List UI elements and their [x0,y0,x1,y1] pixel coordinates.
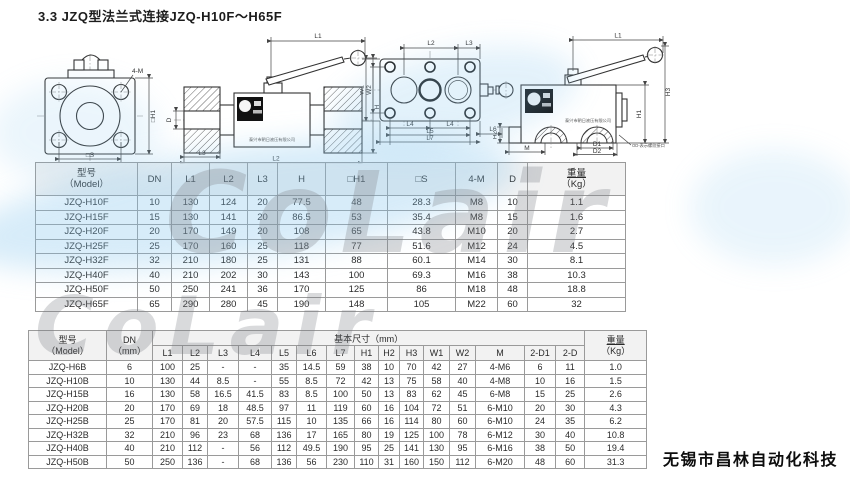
table-cell: 100 [153,361,183,375]
table-cell: 77 [326,239,388,254]
brand-plate [525,89,553,113]
table-cell: 44 [183,374,208,388]
col-header-l6: L6 [297,346,327,361]
table-cell: 31 [379,455,400,469]
table-cell: 104 [400,401,424,415]
table-cell: JZQ-H10F [36,196,138,211]
table-cell: 32 [107,428,153,442]
table-cell: 141 [400,442,424,456]
table-cell: 190 [278,297,326,312]
table-cell: 75 [400,374,424,388]
table-cell: 130 [172,210,210,225]
table-cell: 58 [424,374,450,388]
table-cell: 4.5 [528,239,626,254]
table-cell: 51 [450,401,476,415]
col-header-model: 型号 （Model） [36,163,138,196]
table-cell: 25 [248,239,278,254]
col-header-l4: L4 [239,346,272,361]
table2-header-row1: 型号 （Model） DN （mm） 基本尺寸（mm） 重量 （Kg） [29,331,647,346]
table-cell: 30 [525,428,556,442]
table-cell: 230 [327,455,355,469]
table-cell: 20 [107,401,153,415]
table-row: JZQ-H15F151301412086.55335.4M8151.6 [36,210,626,225]
dim-label-w2: W2 [366,85,373,95]
table-cell: JZQ-H15F [36,210,138,225]
table-cell: 8.5 [297,374,327,388]
table-cell: JZQ-H65F [36,297,138,312]
table-cell: 19 [379,428,400,442]
table-cell: 17 [297,428,327,442]
table-cell: 97 [272,401,297,415]
table-cell: 50 [355,388,379,402]
catalog-page: 3.3 JZQ型法兰式连接JZQ-H10F～H65F CoLair CoLair [0,0,850,489]
table1-body: JZQ-H10F101301242077.54828.3M8101.1JZQ-H… [36,196,626,312]
table-cell: 60 [450,415,476,429]
table-cell: 96 [183,428,208,442]
table-row: JZQ-H50B50250136-68136562301103116015011… [29,455,647,469]
table-cell: 31.3 [585,455,647,469]
table-cell: 180 [210,254,248,269]
table-cell: 210 [172,268,210,283]
col-header-weight: 重量 （Kg） [585,331,647,361]
table-cell: 190 [327,442,355,456]
table-cell: 105 [388,297,456,312]
table-cell: 112 [450,455,476,469]
dim-label-m: M [524,145,529,152]
table-cell: 80 [355,428,379,442]
col-header-h3: H3 [400,346,424,361]
table-cell: 51.6 [388,239,456,254]
table-cell: 280 [210,297,248,312]
dim-label-l4b: L4 [446,121,454,128]
table-cell: 24 [498,239,528,254]
table-cell: 53 [326,210,388,225]
table1-header-row: 型号 （Model） DN L1 L2 L3 H □H1 □S 4-M D 重量… [36,163,626,196]
table-cell: 1.5 [585,374,647,388]
col-header-l7: L7 [327,346,355,361]
table-cell: 141 [210,210,248,225]
table-cell: 131 [278,254,326,269]
table-cell: 136 [183,455,208,469]
table-cell: M12 [456,239,498,254]
table-cell: 95 [355,442,379,456]
table-cell: 143 [278,268,326,283]
table-cell: - [208,361,239,375]
table-row: JZQ-H10F101301242077.54828.3M8101.1 [36,196,626,211]
table-row: JZQ-H20B20170691848.59711119601610472516… [29,401,647,415]
table-cell: 125 [326,283,388,298]
table-cell: 210 [153,442,183,456]
table-cell: 6-M10 [476,401,525,415]
table-cell: 13 [379,388,400,402]
table-cell: 4.3 [585,401,647,415]
table-row: JZQ-H15B161305816.541.5838.5100501383624… [29,388,647,402]
dim-label-h3: H3 [665,87,672,96]
table-cell: 10.3 [528,268,626,283]
table-cell: 36 [248,283,278,298]
table-cell: 25 [556,388,585,402]
table-cell: JZQ-H50F [36,283,138,298]
table-cell: 50 [556,442,585,456]
dim-label-l3: L3 [198,150,206,157]
table-row: JZQ-H32B32210962368136171658019125100786… [29,428,647,442]
table-cell: 11 [297,401,327,415]
table-cell: 202 [210,268,248,283]
table-cell: 100 [326,268,388,283]
table-cell: 30 [248,268,278,283]
table-cell: - [208,455,239,469]
lever-handle [567,46,664,83]
table-cell: 38 [525,442,556,456]
dim-label-d: D [166,117,173,122]
col-header-l1: L1 [153,346,183,361]
table-cell: 42 [424,361,450,375]
table-row: JZQ-H25B25170812057.51151013566161148060… [29,415,647,429]
table-cell: 48 [525,455,556,469]
table-cell: 20 [138,225,172,240]
table-cell: 59 [327,361,355,375]
dim-label-d2: D2 [593,148,602,155]
table-cell: 25 [183,361,208,375]
table-cell: 148 [326,297,388,312]
table-cell: 72 [424,401,450,415]
table-cell: 112 [183,442,208,456]
table-cell: 8.5 [208,374,239,388]
table-cell: 20 [248,210,278,225]
table-cell: 24 [525,415,556,429]
table-cell: 55 [272,374,297,388]
table-cell: 78 [450,428,476,442]
table-cell: 1.6 [528,210,626,225]
col-header-weight: 重量 （Kg） [528,163,626,196]
table-cell: M8 [456,196,498,211]
table-cell: JZQ-H32F [36,254,138,269]
col-header-model: 型号 （Model） [29,331,107,361]
table-cell: 19.4 [585,442,647,456]
table-cell: 69.3 [388,268,456,283]
table-cell: 210 [172,254,210,269]
table-cell: 6-M8 [476,388,525,402]
table-cell: 48.5 [239,401,272,415]
table-cell: 80 [424,415,450,429]
brand-plate [237,97,263,121]
table-cell: 88 [326,254,388,269]
blue-tint-band [690,150,850,265]
dim-label-l7: L7 [426,135,434,142]
dim-label-h1: H1 [636,109,643,118]
table-row: JZQ-H65F6529028045190148105M226032 [36,297,626,312]
thread-note: OD-表示螺纹接口 [632,142,665,149]
col-header-2d1: 2-D1 [525,346,556,361]
table-cell: 210 [153,428,183,442]
table-cell: 165 [327,428,355,442]
table-cell: M14 [456,254,498,269]
table-cell: 20 [525,401,556,415]
col-header-dn: DN [138,163,172,196]
company-name: 无锡市昌林自动化科技 [663,446,838,470]
table-cell: 1.1 [528,196,626,211]
table-cell: 43.8 [388,225,456,240]
table-cell: 32 [528,297,626,312]
table-cell: 30 [556,401,585,415]
table-cell: 18 [208,401,239,415]
table-cell: - [239,361,272,375]
table-cell: 23 [208,428,239,442]
table-cell: 170 [153,401,183,415]
col-header-m: M [476,346,525,361]
table-cell: 20 [208,415,239,429]
table-cell: 95 [450,442,476,456]
col-header-d: D [498,163,528,196]
table-cell: M18 [456,283,498,298]
col-header-h2: H2 [379,346,400,361]
table-cell: 8.5 [297,388,327,402]
table-cell: 170 [172,225,210,240]
dim-label-l3: L3 [465,40,473,47]
dim-label-h1: □H1 [150,110,157,123]
table-cell: 112 [272,442,297,456]
table-cell: 115 [272,415,297,429]
table-cell: 66 [355,415,379,429]
col-header-dn: DN （mm） [107,331,153,361]
table-cell: 170 [172,239,210,254]
table-cell: 42 [355,374,379,388]
col-header-2d: 2-D [556,346,585,361]
dim-label-l4a: L4 [406,121,414,128]
table-cell: 49.5 [297,442,327,456]
table-cell: 250 [153,455,183,469]
table-cell: 241 [210,283,248,298]
table-cell: 10 [138,196,172,211]
block-valve-side-view-drawing: 泰兴市朝日液压有限公司 L1 H3 H1 H2 M D1 [493,27,673,159]
col-header-l1: L1 [172,163,210,196]
table-cell: 50 [107,455,153,469]
table-cell: 100 [327,388,355,402]
table-cell: M16 [456,268,498,283]
table-cell: 56 [239,442,272,456]
table-cell: 16 [107,388,153,402]
table-cell: 32 [138,254,172,269]
col-header-4m: 4-M [456,163,498,196]
table-cell: 15 [525,388,556,402]
table-cell: 4-M6 [476,361,525,375]
table-cell: 60 [556,455,585,469]
table-cell: 35.4 [388,210,456,225]
table-cell: 48 [326,196,388,211]
table-cell: 16 [556,374,585,388]
table-cell: 160 [400,455,424,469]
table-cell: 40 [138,268,172,283]
table-cell: 60 [355,401,379,415]
table-cell: 10.8 [585,428,647,442]
col-header-l3: L3 [248,163,278,196]
table-cell: 2.6 [585,388,647,402]
table-cell: 60 [498,297,528,312]
table-cell: 16 [379,415,400,429]
table-cell: 150 [424,455,450,469]
table-cell: 83 [272,388,297,402]
table-cell: 124 [210,196,248,211]
table-cell: 16.5 [208,388,239,402]
table-cell: JZQ-H15B [29,388,107,402]
table-cell: 118 [278,239,326,254]
table-cell: 160 [210,239,248,254]
table-cell: 20 [498,225,528,240]
col-header-h1: H1 [355,346,379,361]
table-cell: 69 [183,401,208,415]
table-cell: 25 [248,254,278,269]
table-row: JZQ-H50F502502413617012586M184818.8 [36,283,626,298]
dim-label-d1: D1 [593,141,602,148]
col-header-l3: L3 [208,346,239,361]
col-header-w2: W2 [450,346,476,361]
table-cell: 6-M20 [476,455,525,469]
table-cell: 68 [239,455,272,469]
table-row: JZQ-H10B10130448.5-558.57242137558404-M8… [29,374,647,388]
table-cell: 38 [355,361,379,375]
table-cell: 25 [107,415,153,429]
table-cell: 130 [424,442,450,456]
table-cell: 6.2 [585,415,647,429]
table-cell: - [208,442,239,456]
table-cell: 72 [327,374,355,388]
table-cell: 27 [450,361,476,375]
table-cell: M22 [456,297,498,312]
table-cell: 14.5 [297,361,327,375]
table-cell: 65 [326,225,388,240]
dim-label-s: □S [86,152,95,159]
table-cell: 13 [379,374,400,388]
table-cell: 110 [355,455,379,469]
table-cell: 130 [153,388,183,402]
valve-side-view-drawing: 泰兴市朝日液压有限公司 L1 H D L3 L2 [166,27,381,164]
table-row: JZQ-H32F32210180251318860.1M14308.1 [36,254,626,269]
table-cell: JZQ-H25B [29,415,107,429]
col-header-h: H [278,163,326,196]
table-cell: 68 [239,428,272,442]
table-cell: 18.8 [528,283,626,298]
table-cell: 25 [379,442,400,456]
dim-label-w1: W1 [360,85,366,95]
table-cell: 6-M12 [476,428,525,442]
table-cell: 2.7 [528,225,626,240]
table-cell: 8.1 [528,254,626,269]
flange-body [45,78,135,154]
valve-handle [68,55,114,78]
table-cell: JZQ-H6B [29,361,107,375]
table-cell: 60.1 [388,254,456,269]
table-cell: 38 [498,268,528,283]
table-cell: 50 [138,283,172,298]
table-cell: 170 [278,283,326,298]
table-cell: 45 [248,297,278,312]
table-cell: 15 [498,210,528,225]
table-cell: 119 [327,401,355,415]
table-cell: JZQ-H32B [29,428,107,442]
table-cell: 135 [327,415,355,429]
table-cell: 40 [450,374,476,388]
table-cell: 45 [450,388,476,402]
table-cell: 6-M10 [476,415,525,429]
table-cell: 130 [172,196,210,211]
table2-body: JZQ-H6B610025--3514.55938107042274-M6611… [29,361,647,469]
table-cell: 83 [400,388,424,402]
table-cell: 65 [138,297,172,312]
block-dimension-table: 型号 （Model） DN （mm） 基本尺寸（mm） 重量 （Kg） L1 L… [28,330,647,469]
table-cell: 16 [379,401,400,415]
table-cell: 28.3 [388,196,456,211]
table-cell: JZQ-H40F [36,268,138,283]
table-cell: 30 [498,254,528,269]
table-cell: 10 [525,374,556,388]
lever-handle [266,49,367,85]
table-cell: 86.5 [278,210,326,225]
table-cell: 6 [525,361,556,375]
col-header-s: □S [388,163,456,196]
table-cell: JZQ-H10B [29,374,107,388]
table-cell: 58 [183,388,208,402]
dim-label-h2: H2 [493,130,499,139]
table-cell: 70 [400,361,424,375]
table-cell: 6 [107,361,153,375]
col-header-l2: L2 [210,163,248,196]
table-cell: 86 [388,283,456,298]
table-cell: 15 [138,210,172,225]
table-cell: 136 [272,455,297,469]
table-cell: JZQ-H40B [29,442,107,456]
table-cell: 10 [379,361,400,375]
flange-dimension-table: 型号 （Model） DN L1 L2 L3 H □H1 □S 4-M D 重量… [35,162,626,312]
table-cell: 35 [272,361,297,375]
table-cell: 40 [107,442,153,456]
col-header-l2: L2 [183,346,208,361]
table-cell: 149 [210,225,248,240]
col-header-h1: □H1 [326,163,388,196]
dim-label-l5: L5 [426,128,434,135]
table-cell: JZQ-H50B [29,455,107,469]
table-cell: JZQ-H25F [36,239,138,254]
table-row: JZQ-H6B610025--3514.55938107042274-M6611… [29,361,647,375]
table-cell: 100 [424,428,450,442]
table-cell: 130 [153,374,183,388]
table-cell: 40 [556,428,585,442]
table-cell: 20 [248,225,278,240]
table-cell: JZQ-H20B [29,401,107,415]
table-cell: 108 [278,225,326,240]
table-cell: JZQ-H20F [36,225,138,240]
table-cell: 25 [138,239,172,254]
table-cell: 1.0 [585,361,647,375]
table-cell: 136 [272,428,297,442]
dim-label-4m: 4-M [132,68,143,75]
manifold-plan-view-drawing: L2 L3 W1 W2 L4 L4 L5 L7 L6 [360,33,515,148]
table-cell: 77.5 [278,196,326,211]
dim-label-l1: L1 [614,33,622,40]
table-row: JZQ-H20F20170149201086543.8M10202.7 [36,225,626,240]
table-cell: - [239,374,272,388]
table-cell: 114 [400,415,424,429]
body-inscription: 泰兴市朝日液压有限公司 [565,117,611,124]
flange-front-view-drawing: 4-M □H1 □S [33,30,168,163]
table-cell: 250 [172,283,210,298]
table-cell: M8 [456,210,498,225]
col-header-l5: L5 [272,346,297,361]
table-cell: 11 [556,361,585,375]
table-cell: 290 [172,297,210,312]
table-cell: 48 [498,283,528,298]
table-cell: 6-M16 [476,442,525,456]
col-header-w1: W1 [424,346,450,361]
